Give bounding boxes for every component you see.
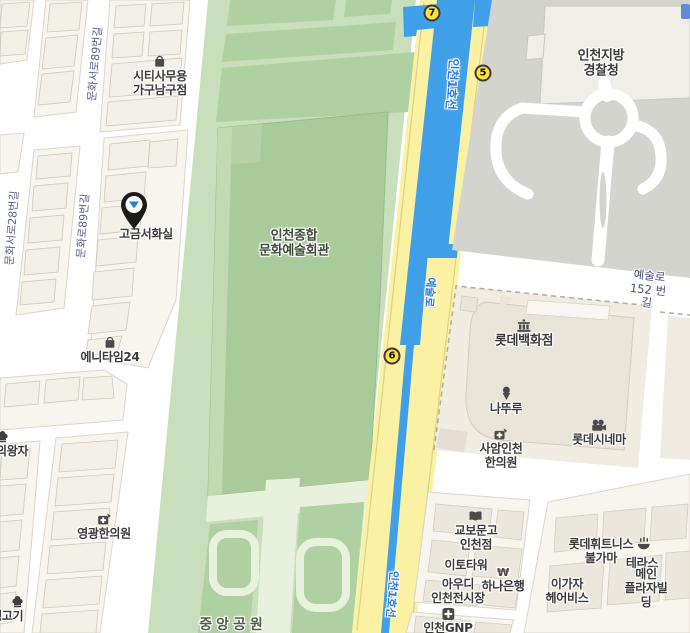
map-pin-marker[interactable] — [121, 192, 147, 229]
police-agency-label: 인천지방 경찰청 — [578, 49, 625, 80]
poi-anytime24[interactable]: 에니타임24 — [80, 336, 139, 364]
central-park-label: 중앙공원 — [199, 617, 267, 633]
poi-lotte-fitness[interactable]: 롯데휘트니스 불가마 — [569, 537, 633, 565]
poi-yeonggwang-clinic[interactable]: 영광한의원 — [77, 513, 131, 540]
book-icon — [469, 510, 483, 522]
street-label-yesulro: 예술로 — [422, 277, 437, 307]
poi-gogeum-label[interactable]: 고금서화실 — [119, 227, 173, 241]
cinema-camera-icon — [591, 419, 606, 431]
police-agency-block — [452, 0, 690, 278]
poi-natuur[interactable]: 나뚜루 — [490, 386, 522, 415]
lotte-block — [434, 286, 690, 468]
oriental-clinic-icon — [494, 428, 508, 440]
clinic-cross-icon — [442, 608, 454, 620]
shopping-bag-icon — [153, 55, 166, 68]
poi-igaja-hair[interactable]: 이가자 헤어비스 — [546, 577, 589, 605]
poi-hana-bank[interactable]: ₩ 하나은행 — [482, 567, 525, 593]
poi-lotte-department-store[interactable]: 롯데백화점 — [495, 319, 553, 348]
poi-uiwangja[interactable]: 의왕자 — [0, 430, 28, 458]
poi-audi-showroom[interactable]: 아우디 인천전시장 — [431, 577, 485, 605]
subway-station-7[interactable]: 7 — [424, 5, 441, 22]
oriental-clinic-icon — [97, 513, 111, 525]
poi-incheon-gnp[interactable]: 인천GNP — [423, 608, 472, 633]
chef-hat-icon — [11, 595, 24, 608]
map-viewport[interactable]: 문화서로28번길 문화서로89번길 문화로89번길 예술로152 번길 예술로 … — [0, 0, 690, 633]
subway-line1-label-bottom: 인천1호선 — [383, 570, 400, 618]
won-currency-icon: ₩ — [497, 567, 509, 578]
map-pin-icon — [121, 192, 147, 229]
department-store-icon — [517, 319, 531, 332]
shopping-bag-icon — [104, 336, 117, 349]
road-shield-partial — [681, 4, 690, 19]
poi-kyobo-bookstore[interactable]: 교보문고 인천점 — [455, 510, 498, 551]
poi-citi-furniture[interactable]: 시티사무용 가구남구점 — [133, 55, 187, 97]
poi-saam-clinic[interactable]: 사암인천 한의원 — [480, 428, 523, 469]
poi-main-plaza[interactable]: 메인 플라자빌딩 — [624, 567, 668, 609]
subway-station-5[interactable]: 5 — [475, 65, 492, 82]
sauna-icon — [637, 537, 651, 550]
subway-station-6[interactable]: 6 — [384, 348, 401, 365]
chef-hat-icon — [0, 430, 9, 443]
poi-lotte-cinema[interactable]: 롯데시네마 — [572, 419, 626, 446]
poi-saengogi[interactable]: 생고기 — [0, 595, 24, 623]
street-label-yesulro152: 예술로152 번길 — [625, 268, 671, 313]
arts-center-footprint — [208, 112, 388, 496]
arts-center-label: 인천종합 문화예술회관 — [259, 229, 329, 260]
ice-cream-icon — [500, 386, 511, 400]
